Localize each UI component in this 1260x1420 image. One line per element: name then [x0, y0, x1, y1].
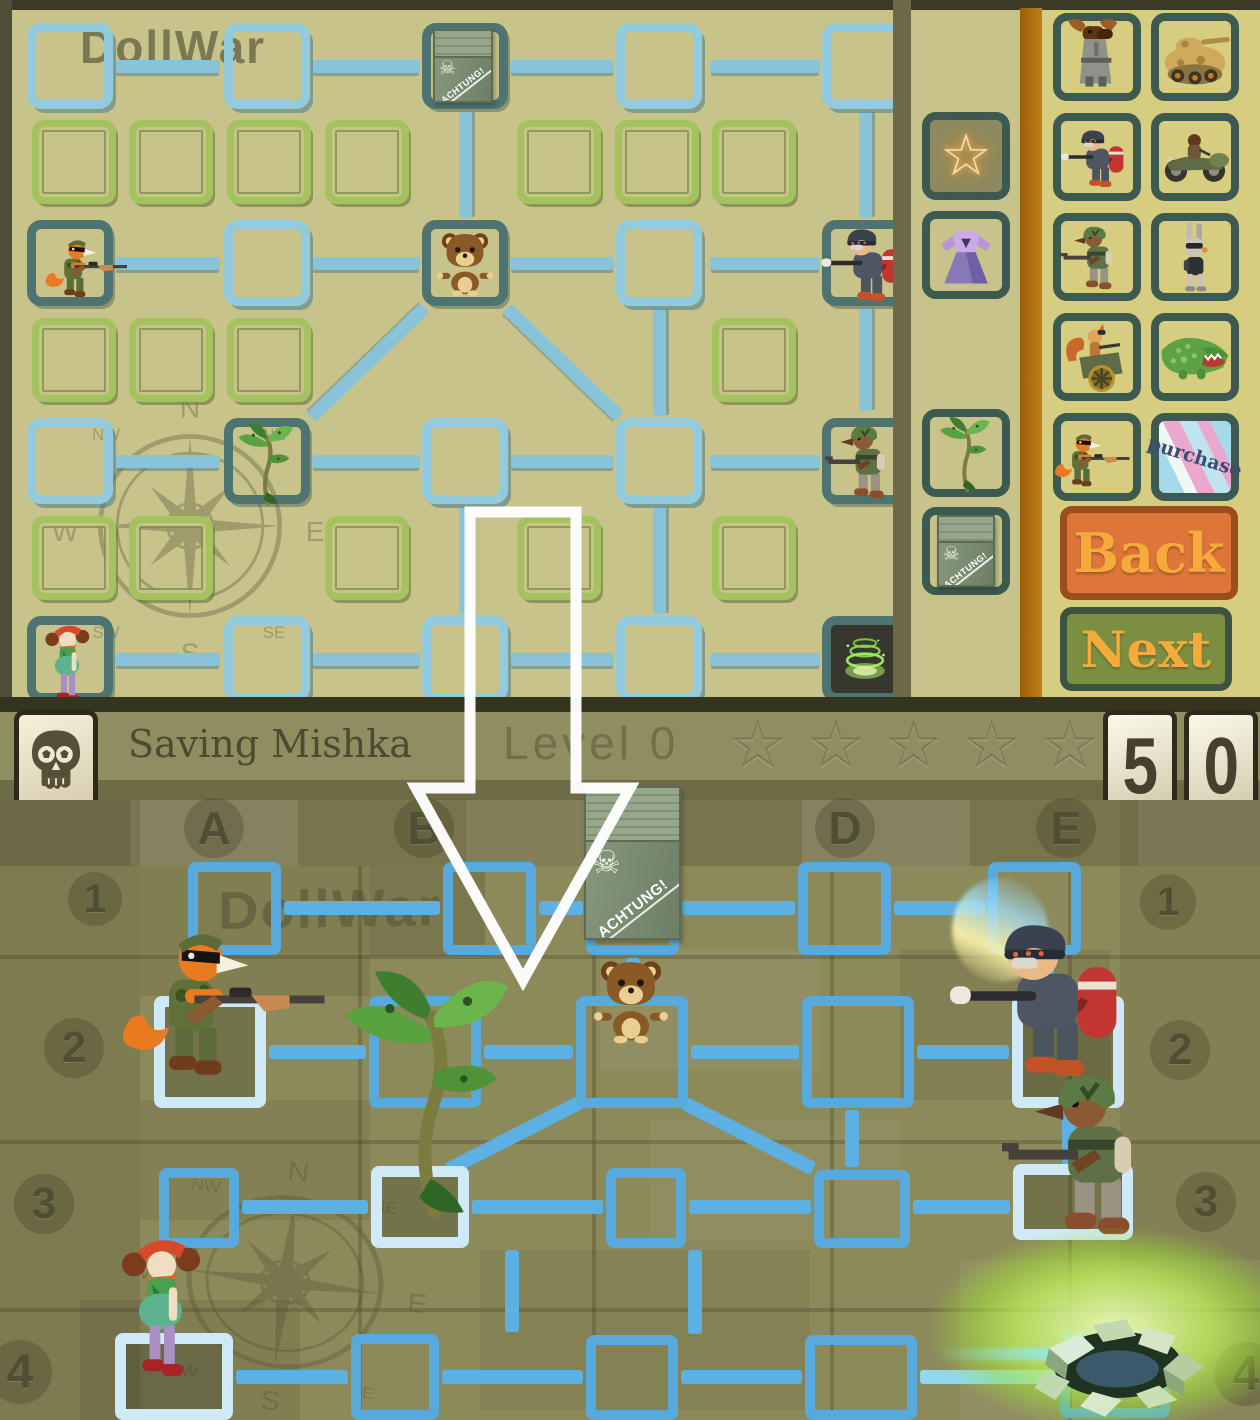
dog-soldier-icon — [1061, 221, 1133, 293]
tool-plant[interactable] — [922, 409, 1010, 497]
field-node-B4[interactable] — [351, 1334, 439, 1420]
path-line — [653, 506, 666, 614]
editor-node-cell-A3[interactable] — [27, 418, 113, 504]
row-label-left-2: 2 — [44, 1018, 104, 1078]
editor-node-cell-B2[interactable] — [224, 220, 310, 306]
tool-crate[interactable]: ☠ ACHTUNG! — [922, 507, 1010, 595]
editor-cell-girl[interactable] — [27, 616, 113, 702]
path-line — [859, 111, 872, 218]
editor-green-cell[interactable] — [712, 516, 796, 600]
unit-pig-flamethrower[interactable] — [1053, 113, 1141, 201]
rabbit-trooper-icon — [1167, 221, 1223, 293]
rating-star: ☆ — [884, 706, 943, 783]
rating-star: ☆ — [962, 706, 1021, 783]
field-node-C4[interactable] — [586, 1335, 678, 1420]
skull-card — [14, 710, 98, 812]
path-line — [510, 60, 614, 73]
path-line — [681, 1370, 802, 1384]
achtung-crate: ☠ ACHTUNG! — [433, 29, 493, 103]
girl-sprite[interactable] — [116, 1232, 212, 1388]
editor-green-cell[interactable] — [32, 516, 116, 600]
path-line — [689, 1200, 811, 1214]
purchase-label: purchase — [1145, 432, 1245, 482]
editor-green-cell[interactable] — [32, 120, 116, 204]
compass-s: S — [259, 1384, 283, 1416]
path-line — [115, 60, 220, 73]
plant-icon — [938, 413, 994, 493]
girl-icon — [42, 621, 96, 709]
path-line — [510, 455, 614, 468]
path-line — [710, 257, 820, 270]
plant-sprite[interactable] — [338, 960, 523, 1220]
editor-node-cell-B4[interactable] — [224, 616, 310, 702]
path-line-diagonal — [307, 303, 430, 422]
path-line — [236, 1370, 348, 1384]
row-label-left-3: 3 — [14, 1174, 74, 1234]
path-line — [859, 308, 872, 411]
column-label-E: E — [1036, 798, 1096, 858]
editor-green-cell[interactable] — [325, 120, 409, 204]
skull-crossbones-icon: ☠ — [943, 546, 960, 565]
tool-dress[interactable] — [922, 211, 1010, 299]
path-line — [691, 1045, 799, 1059]
editor-green-cell[interactable] — [517, 120, 601, 204]
rating-star: ☆ — [1040, 706, 1099, 783]
unit-rabbit-trooper[interactable] — [1151, 213, 1239, 301]
fox-rifleman-icon — [1051, 421, 1133, 493]
dog-soldier-sprite[interactable] — [1002, 1070, 1184, 1236]
path-line — [710, 60, 820, 73]
editor-green-cell[interactable] — [325, 516, 409, 600]
editor-node-cell-B1[interactable] — [224, 23, 310, 109]
fox-rifleman-sprite[interactable] — [112, 916, 334, 1075]
palette-divider-stripe — [1020, 8, 1042, 697]
row-label-right-3: 3 — [1176, 1172, 1236, 1232]
path-line — [710, 653, 820, 666]
squirrel-gun-cart-icon — [1061, 317, 1133, 397]
editor-cell-bear[interactable] — [422, 220, 508, 306]
editor-green-cell[interactable] — [227, 120, 311, 204]
path-line — [913, 1200, 1010, 1214]
top-edge — [0, 0, 1260, 10]
unit-motorcycle-sidecar[interactable] — [1151, 113, 1239, 201]
purchase-button[interactable]: purchase — [1151, 413, 1239, 501]
column-label-D: D — [815, 798, 875, 858]
path-line — [115, 653, 220, 666]
field-node-D1[interactable] — [798, 862, 891, 955]
tank-icon — [1159, 17, 1231, 97]
editor-node-cell-D1[interactable] — [616, 23, 702, 109]
unit-dog-soldier[interactable] — [1053, 213, 1141, 301]
path-line — [845, 1110, 859, 1167]
star-icon: ☆ — [940, 121, 992, 191]
board-divider — [893, 0, 911, 697]
crate-front: ☠ ACHTUNG! — [937, 541, 995, 587]
path-line — [682, 901, 795, 915]
rating-star: ☆ — [728, 706, 787, 783]
teddy-bear-icon — [432, 228, 498, 298]
dollwar-game-screen: N E S W NE SE SW NW DollWar — [0, 0, 1260, 1420]
editor-green-cell[interactable] — [712, 318, 796, 402]
path-line — [510, 257, 614, 270]
field-node-D2[interactable] — [802, 996, 914, 1108]
skull-icon — [26, 727, 86, 795]
compass-n: N — [286, 1155, 311, 1187]
crocodile-icon — [1159, 326, 1231, 388]
back-button[interactable]: Back — [1060, 506, 1238, 600]
editor-cell-plant[interactable] — [224, 418, 310, 504]
editor-node-cell-D2[interactable] — [616, 220, 702, 306]
editor-green-cell[interactable] — [129, 120, 213, 204]
path-line — [710, 455, 820, 468]
fox-rifleman-icon — [28, 233, 144, 297]
path-line — [505, 1250, 519, 1332]
editor-cell-fox[interactable] — [27, 220, 113, 306]
path-line — [115, 455, 220, 468]
field-node-D3[interactable] — [814, 1170, 910, 1248]
back-button-label: Back — [1074, 521, 1225, 585]
next-button[interactable]: Next — [1060, 607, 1232, 691]
editor-cell-crate[interactable]: ☠ ACHTUNG! — [422, 23, 508, 109]
tutorial-arrow — [400, 500, 640, 992]
mission-title: Saving Mishka — [128, 722, 412, 766]
next-button-label: Next — [1081, 620, 1211, 679]
dress-icon — [932, 221, 1000, 289]
editor-green-cell[interactable] — [129, 516, 213, 600]
editor-green-cell[interactable] — [129, 318, 213, 402]
field-node-D4[interactable] — [805, 1335, 917, 1420]
skull-crossbones-icon: ☠ — [439, 60, 456, 79]
unit-fox-rifleman[interactable] — [1053, 413, 1141, 501]
crate-icon: ☠ ACHTUNG! — [937, 515, 995, 587]
path-line — [688, 1250, 702, 1334]
unit-crocodile[interactable] — [1151, 313, 1239, 401]
unit-moose-soldier[interactable] — [1053, 13, 1141, 101]
tool-star[interactable]: ☆ — [922, 112, 1010, 200]
pig-flamethrower-sprite[interactable] — [950, 916, 1142, 1076]
editor-green-cell[interactable] — [227, 318, 311, 402]
unit-squirrel-gun-cart[interactable] — [1053, 313, 1141, 401]
editor-green-cell[interactable] — [615, 120, 699, 204]
motorcycle-sidecar-icon — [1159, 123, 1231, 191]
editor-green-cell[interactable] — [712, 120, 796, 204]
unit-tank[interactable] — [1151, 13, 1239, 101]
path-line — [653, 308, 666, 416]
editor-green-cell[interactable] — [32, 318, 116, 402]
path-line — [442, 1370, 583, 1384]
crate-front: ☠ ACHTUNG! — [433, 56, 493, 103]
plant-icon — [236, 419, 298, 506]
column-label-A: A — [184, 798, 244, 858]
path-line — [312, 60, 420, 73]
moose-soldier-icon — [1061, 15, 1133, 89]
path-line — [312, 257, 420, 270]
editor-node-cell-D3[interactable] — [616, 418, 702, 504]
left-edge — [0, 0, 12, 697]
field-node-C3[interactable] — [606, 1168, 686, 1248]
path-line — [312, 455, 420, 468]
editor-node-cell-C3[interactable] — [422, 418, 508, 504]
row-label-right-1: 1 — [1140, 874, 1196, 930]
crate-lid — [937, 515, 995, 541]
compass-e: E — [406, 1287, 430, 1319]
compass-e: E — [306, 516, 325, 547]
path-line — [459, 111, 472, 218]
pig-flamethrower-icon — [1061, 121, 1133, 193]
rating-star: ☆ — [806, 706, 865, 783]
score-digit: 0 — [1203, 720, 1239, 812]
path-line-diagonal — [502, 304, 623, 422]
editor-node-cell-A1[interactable] — [27, 23, 113, 109]
portal-rings-icon — [832, 626, 898, 692]
portal-stones-sprite[interactable] — [990, 1284, 1245, 1420]
score-digit: 5 — [1122, 720, 1158, 812]
crate-lid — [433, 29, 493, 56]
